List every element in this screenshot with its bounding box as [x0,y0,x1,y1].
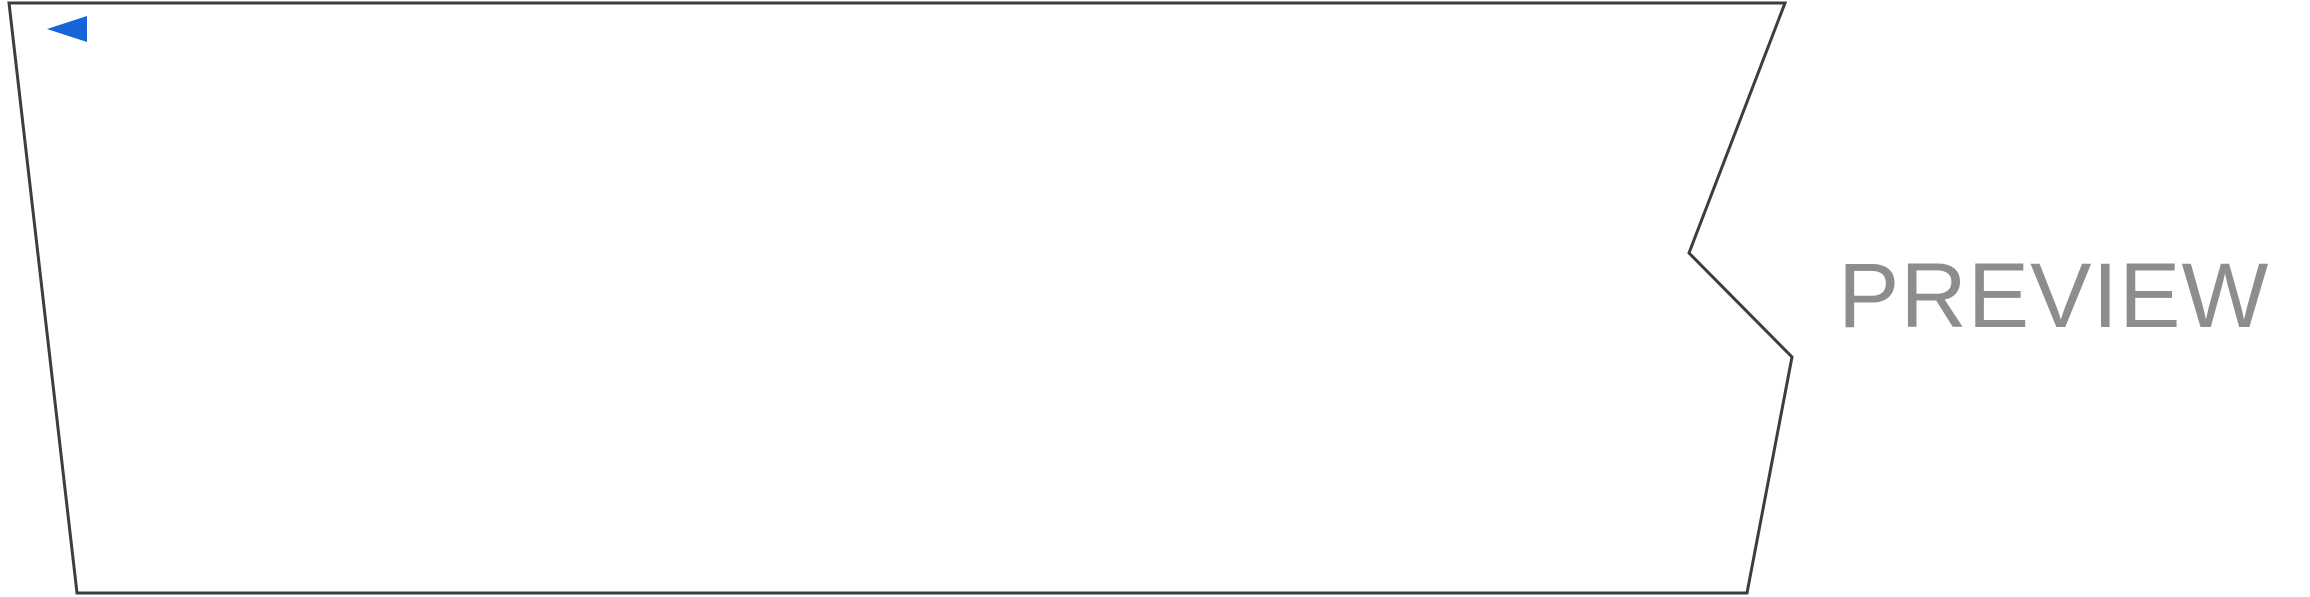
pitch-label: E [98,38,158,51]
note-dot [373,240,389,259]
note-dot [1278,362,1294,381]
grid-octave-block [164,36,1829,87]
grid-octave-block [164,469,1829,552]
measure-number: 7 [1469,550,1487,587]
pitch-label: A# [98,316,158,329]
pitch-label: C# [98,259,158,272]
pitch-label: B [98,299,158,312]
pitch-label: F [98,193,158,206]
pitch-label: F# [98,177,158,190]
measure-number: 8 [1686,550,1704,587]
note-dot [1170,329,1186,348]
pitch-label: G [98,365,158,378]
measure-number: 6 [1252,550,1270,587]
note-dot [771,395,787,414]
pitch-label: A [98,332,158,345]
pitch-label: D [98,243,158,256]
note-dot [156,362,172,381]
music-box-preview: 30331□□ □□□ by sda13_s230209 EDCBA#AG#GF… [0,0,2310,597]
note-dot [699,329,715,348]
pitch-label: F [98,398,158,411]
note-dot [1206,362,1222,381]
note-dot [446,273,462,292]
play-button[interactable] [47,16,89,42]
beat-gridlines [164,297,1829,463]
pitch-label: D [98,431,158,444]
pitch-label: A [98,488,158,501]
pitch-label: G [98,504,158,517]
pitch-label: B [98,471,158,484]
pitch-label: D [98,54,158,67]
measure-number: 3 [600,550,618,587]
pitch-label: E [98,415,158,428]
note-dot [1242,395,1258,414]
pitch-label: F# [98,382,158,395]
grid-octave-block [164,92,1829,291]
note-dot [808,362,824,381]
pitch-label: C [98,448,158,461]
beat-gridlines [164,37,1829,87]
pitch-label: C [98,537,158,550]
pitch-label: E [98,210,158,223]
beat-gridlines [164,92,1829,291]
pitch-label: G [98,160,158,173]
beat-gridlines [164,469,1829,552]
pitch-label: D [98,521,158,534]
site-url-watermark: https://musicboxmaniacs.com [140,552,468,581]
note-dot [1713,428,1729,447]
note-dot [1061,296,1077,315]
note-dot [735,362,751,381]
pitch-label: B [98,94,158,107]
pitch-label: A# [98,110,158,123]
note-dot [590,296,606,315]
measure-number: 5 [1035,550,1053,587]
note-dot [1423,445,1439,464]
play-triangle-icon [47,16,87,42]
pitch-label: G# [98,144,158,157]
grid-octave-block [164,297,1829,463]
pitch-label: G# [98,349,158,362]
pitch-label: C [98,71,158,84]
pitch-label: D# [98,226,158,239]
preview-watermark: PREVIEW [1838,244,2269,349]
note-dot [989,445,1005,464]
measure-number: 4 [818,550,836,587]
melody-title: 30331□□ □□□ by sda13_s230209 [168,2,597,35]
note-dot [1495,428,1511,447]
pitch-label: A [98,127,158,140]
pitch-label: C [98,276,158,289]
